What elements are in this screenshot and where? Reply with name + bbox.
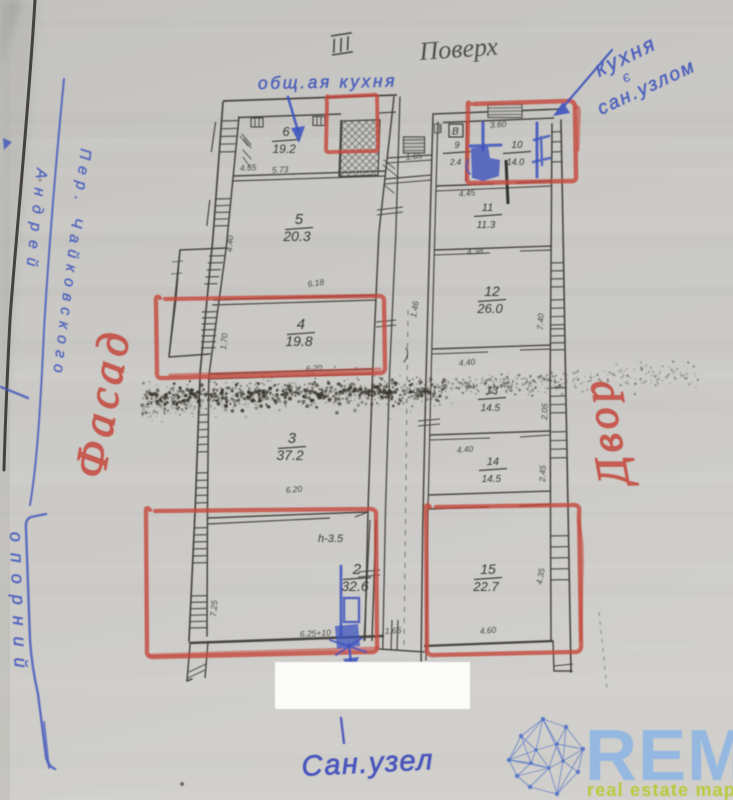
svg-text:19.8: 19.8 (285, 333, 312, 349)
svg-text:5.73: 5.73 (272, 164, 289, 175)
svg-text:real estate map: real estate map (587, 780, 733, 800)
svg-text:14: 14 (487, 456, 499, 468)
svg-text:15: 15 (480, 561, 496, 577)
svg-text:7.25: 7.25 (208, 600, 219, 618)
svg-text:2.05: 2.05 (539, 403, 550, 421)
svg-text:7.40: 7.40 (535, 313, 546, 330)
svg-text:1.65: 1.65 (385, 625, 402, 636)
svg-text:3.60: 3.60 (489, 119, 506, 130)
svg-text:4.60: 4.60 (479, 625, 497, 636)
svg-text:6.20: 6.20 (285, 484, 303, 495)
svg-text:22.7: 22.7 (472, 579, 499, 594)
svg-text:1.65: 1.65 (405, 150, 423, 162)
svg-text:12: 12 (484, 283, 500, 299)
svg-text:11.3: 11.3 (477, 220, 496, 231)
svg-text:В: В (452, 127, 459, 138)
svg-text:h-3.5: h-3.5 (318, 533, 344, 545)
svg-text:19.2: 19.2 (273, 142, 297, 156)
svg-text:6: 6 (282, 124, 290, 139)
svg-text:4.40: 4.40 (458, 357, 476, 368)
svg-text:3: 3 (288, 430, 297, 447)
svg-text:4.65: 4.65 (240, 162, 257, 173)
svg-text:10: 10 (511, 140, 523, 151)
svg-text:Поверх: Поверх (417, 32, 499, 67)
svg-text:37.2: 37.2 (276, 447, 303, 463)
svg-text:2.45: 2.45 (537, 465, 548, 483)
svg-text:9: 9 (455, 140, 460, 150)
svg-text:11: 11 (482, 202, 493, 214)
svg-text:4.40: 4.40 (224, 235, 235, 252)
svg-text:14.0: 14.0 (507, 157, 525, 167)
svg-text:общ.ая кухня: общ.ая кухня (258, 71, 398, 93)
svg-text:2: 2 (352, 561, 362, 578)
svg-text:14.5: 14.5 (482, 474, 502, 485)
svg-text:6.25+10: 6.25+10 (300, 627, 332, 639)
svg-text:26.0: 26.0 (476, 301, 503, 316)
svg-text:14.5: 14.5 (481, 403, 501, 414)
svg-text:32.6: 32.6 (341, 578, 368, 594)
svg-text:4.40: 4.40 (456, 444, 474, 455)
svg-text:4.45: 4.45 (458, 187, 476, 199)
svg-text:20.3: 20.3 (282, 228, 310, 244)
svg-text:4: 4 (297, 316, 305, 333)
svg-text:4.38: 4.38 (466, 246, 484, 257)
svg-text:5: 5 (295, 211, 304, 228)
svg-text:2.4: 2.4 (449, 158, 462, 167)
svg-text:1.70: 1.70 (218, 332, 230, 350)
